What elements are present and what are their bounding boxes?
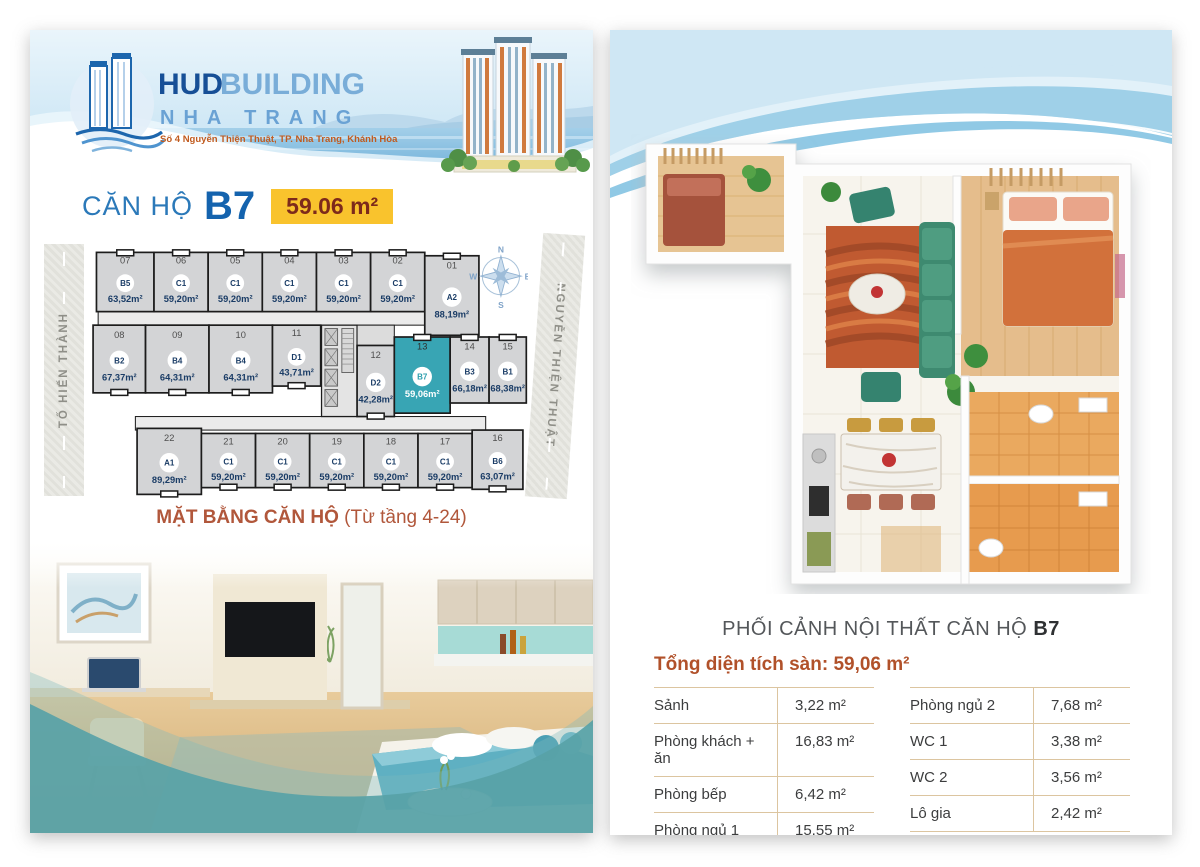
svg-text:68,38m²: 68,38m² [490, 384, 525, 394]
table-row: Lô gia2,42 m² [910, 795, 1130, 832]
svg-text:16: 16 [492, 433, 502, 443]
svg-text:B4: B4 [236, 356, 247, 365]
svg-text:07: 07 [120, 255, 130, 265]
svg-text:59,06m²: 59,06m² [405, 389, 440, 399]
nightstand [985, 192, 999, 210]
floorplan-unit-16: 16B663,07m² [472, 430, 523, 492]
svg-text:C1: C1 [277, 458, 288, 467]
wc-1 [969, 392, 1119, 476]
svg-text:08: 08 [114, 330, 124, 340]
floorplan-unit-03: 03C159,20m² [316, 250, 370, 312]
svg-text:43,71m²: 43,71m² [279, 367, 314, 377]
dining-chairs-top [847, 418, 935, 432]
svg-text:59,20m²: 59,20m² [319, 472, 354, 482]
floorplan-unit-13: 13B759,06m² [394, 334, 450, 413]
svg-text:15: 15 [503, 342, 513, 352]
corridor-upper [98, 312, 425, 326]
floorplan-unit-20: 20C159,20m² [256, 433, 310, 490]
svg-text:B1: B1 [503, 367, 514, 376]
area-table-left-column: Sảnh3,22 m² Phòng khách + ăn16,83 m² Phò… [654, 687, 874, 835]
wc-divider-wall [969, 476, 1119, 484]
plant-master [964, 344, 988, 368]
apartment-3d-render [631, 134, 1151, 594]
svg-text:63,52m²: 63,52m² [108, 294, 143, 304]
kitchen [434, 580, 593, 666]
table-row: Phòng bếp6,42 m² [654, 776, 874, 812]
svg-text:B7: B7 [417, 373, 428, 382]
master-bed [1003, 192, 1113, 326]
floorplan-unit-08: 08B267,37m² [93, 325, 145, 395]
floorplan-unit-04: 04C159,20m² [262, 250, 316, 312]
svg-text:42,28m²: 42,28m² [358, 395, 393, 405]
stove [809, 486, 829, 516]
brochure-page-render: PHỐI CẢNH NỘI THẤT CĂN HỘ B7 Tổng diện t… [610, 30, 1172, 835]
svg-text:59,20m²: 59,20m² [272, 294, 307, 304]
svg-text:B5: B5 [120, 279, 131, 288]
svg-text:C1: C1 [440, 458, 451, 467]
svg-text:01: 01 [447, 260, 457, 270]
street-to-hien-thanh: TỐ HIẾN THÀNH [44, 244, 84, 496]
floorplan-unit-05: 05C159,20m² [208, 250, 262, 312]
floorplan-unit-12: 12D242,28m² [357, 345, 394, 419]
table-row: Sảnh3,22 m² [654, 687, 874, 723]
table-row: Phòng ngủ 115,55 m² [654, 812, 874, 835]
floorplan-unit-09: 09B464,31m² [146, 325, 209, 395]
svg-text:13: 13 [417, 342, 427, 352]
brand-primary: HUD [158, 68, 223, 101]
floorplan-unit-10: 10B464,31m² [209, 325, 272, 395]
svg-text:B3: B3 [464, 367, 475, 376]
svg-text:05: 05 [230, 255, 240, 265]
table-row: WC 13,38 m² [910, 723, 1130, 759]
floorplan-diagram: 07B563,52m²06C159,20m²05C159,20m²04C159,… [88, 242, 528, 498]
svg-text:64,31m²: 64,31m² [223, 373, 258, 383]
svg-text:18: 18 [386, 436, 396, 446]
svg-text:20: 20 [277, 436, 287, 446]
svg-text:C1: C1 [332, 458, 343, 467]
dining-chairs-bottom [847, 494, 935, 510]
brand-address: Số 4 Nguyễn Thiện Thuật, TP. Nha Trang, … [160, 134, 398, 145]
title-prefix: CĂN HỘ [82, 191, 193, 222]
interior-photo [30, 542, 593, 833]
svg-text:21: 21 [223, 436, 233, 446]
svg-text:C1: C1 [223, 458, 234, 467]
svg-text:59,20m²: 59,20m² [164, 294, 199, 304]
toilet [1029, 405, 1053, 423]
area-table-right-column: Phòng ngủ 27,68 m² WC 13,38 m² WC 23,56 … [910, 687, 1130, 835]
svg-text:67,37m²: 67,37m² [102, 373, 137, 383]
floorplan-unit-15: 15B168,38m² [489, 334, 526, 403]
svg-text:59,20m²: 59,20m² [380, 294, 415, 304]
svg-text:59,20m²: 59,20m² [374, 472, 409, 482]
bedroom-2 [658, 148, 784, 252]
svg-text:17: 17 [440, 436, 450, 446]
brand-city: NHA TRANG [160, 107, 360, 129]
svg-text:09: 09 [172, 330, 182, 340]
svg-text:02: 02 [393, 255, 403, 265]
svg-text:B4: B4 [172, 356, 183, 365]
area-table: Tổng diện tích sàn: 59,06 m² Sảnh3,22 m²… [654, 654, 1130, 835]
svg-text:59,20m²: 59,20m² [218, 294, 253, 304]
svg-text:A2: A2 [447, 293, 458, 302]
svg-text:E: E [525, 271, 528, 281]
fridge [807, 532, 831, 566]
svg-text:C1: C1 [393, 279, 404, 288]
plan-caption: MẶT BẰNG CĂN HỘ (Từ tầng 4-24) [30, 507, 593, 529]
mirror [342, 584, 382, 708]
svg-text:64,31m²: 64,31m² [160, 373, 195, 383]
svg-text:11: 11 [292, 328, 302, 338]
svg-text:22: 22 [164, 433, 174, 443]
floorplan-unit-07: 07B563,52m² [96, 250, 154, 312]
svg-text:12: 12 [371, 350, 381, 360]
header-banner: HUD BUILDING NHA TRANG Số 4 Nguyễn Thiện… [30, 30, 593, 190]
wc-2 [969, 484, 1119, 572]
brochure-page-floorplan: HUD BUILDING NHA TRANG Số 4 Nguyễn Thiện… [30, 30, 593, 833]
svg-text:14: 14 [464, 342, 474, 352]
title-unit-code: B7 [204, 186, 255, 226]
svg-text:59,20m²: 59,20m² [326, 294, 361, 304]
table-row: WC 23,56 m² [910, 759, 1130, 795]
sink [812, 449, 826, 463]
floorplan-unit-17: 17C159,20m² [418, 433, 472, 490]
plant-living [821, 182, 841, 202]
table-row: Phòng khách + ăn16,83 m² [654, 723, 874, 776]
floorplan-unit-11: 11D143,71m² [272, 325, 320, 388]
street-nguyen-thien-thuat: NGUYỄN THIỆN THUẬT [525, 233, 585, 499]
svg-text:B2: B2 [114, 356, 125, 365]
svg-text:06: 06 [176, 255, 186, 265]
svg-text:66,18m²: 66,18m² [452, 384, 487, 394]
svg-text:C1: C1 [338, 279, 349, 288]
area-badge: 59.06 m² [271, 189, 393, 224]
svg-text:D2: D2 [371, 378, 382, 387]
svg-text:59,20m²: 59,20m² [265, 472, 300, 482]
entry-mat [881, 526, 941, 572]
toilet-wc2 [979, 539, 1003, 557]
floorplan-unit-14: 14B366,18m² [450, 334, 489, 403]
brand-secondary: BUILDING [220, 68, 365, 101]
svg-text:C1: C1 [386, 458, 397, 467]
apartment-title: CĂN HỘ B7 59.06 m² [82, 186, 393, 226]
table-row: Phòng ngủ 27,68 m² [910, 687, 1130, 723]
svg-text:D1: D1 [291, 353, 302, 362]
armchair-2 [861, 372, 901, 402]
svg-text:10: 10 [236, 330, 246, 340]
svg-text:19: 19 [332, 436, 342, 446]
svg-text:C1: C1 [230, 279, 241, 288]
floorplan-unit-06: 06C159,20m² [154, 250, 208, 312]
svg-text:C1: C1 [176, 279, 187, 288]
floorplan-unit-01: 01A288,19m² [425, 253, 479, 335]
hall-wall [961, 376, 969, 584]
master-bedroom [953, 168, 1125, 376]
svg-text:A1: A1 [164, 459, 175, 468]
svg-text:04: 04 [284, 255, 294, 265]
area-table-title: Tổng diện tích sàn: 59,06 m² [654, 654, 1130, 676]
floorplan-unit-02: 02C159,20m² [371, 250, 425, 312]
svg-text:C1: C1 [284, 279, 295, 288]
sink-wc2 [1079, 492, 1107, 506]
dining-area [841, 418, 941, 510]
floorplan-unit-22: 22A189,29m² [137, 428, 201, 497]
svg-text:63,07m²: 63,07m² [480, 471, 515, 481]
sink-wc1 [1079, 398, 1107, 412]
render-caption: PHỐI CẢNH NỘI THẤT CĂN HỘ B7 [610, 618, 1172, 641]
wall-art [1115, 254, 1125, 298]
svg-text:N: N [498, 244, 504, 254]
floorplan-unit-21: 21C159,20m² [201, 433, 255, 490]
svg-text:S: S [498, 300, 504, 310]
svg-text:B6: B6 [492, 457, 503, 466]
floorplan-unit-18: 18C159,20m² [364, 433, 418, 490]
svg-text:03: 03 [338, 255, 348, 265]
render-caption-unit: B7 [1033, 618, 1060, 640]
svg-text:88,19m²: 88,19m² [435, 309, 470, 319]
floorplan-units: 07B563,52m²06C159,20m²05C159,20m²04C159,… [93, 250, 526, 497]
svg-text:89,29m²: 89,29m² [152, 475, 187, 485]
floorplan-unit-19: 19C159,20m² [310, 433, 364, 490]
svg-text:59,20m²: 59,20m² [428, 472, 463, 482]
svg-text:59,20m²: 59,20m² [211, 472, 246, 482]
svg-text:W: W [469, 271, 477, 281]
